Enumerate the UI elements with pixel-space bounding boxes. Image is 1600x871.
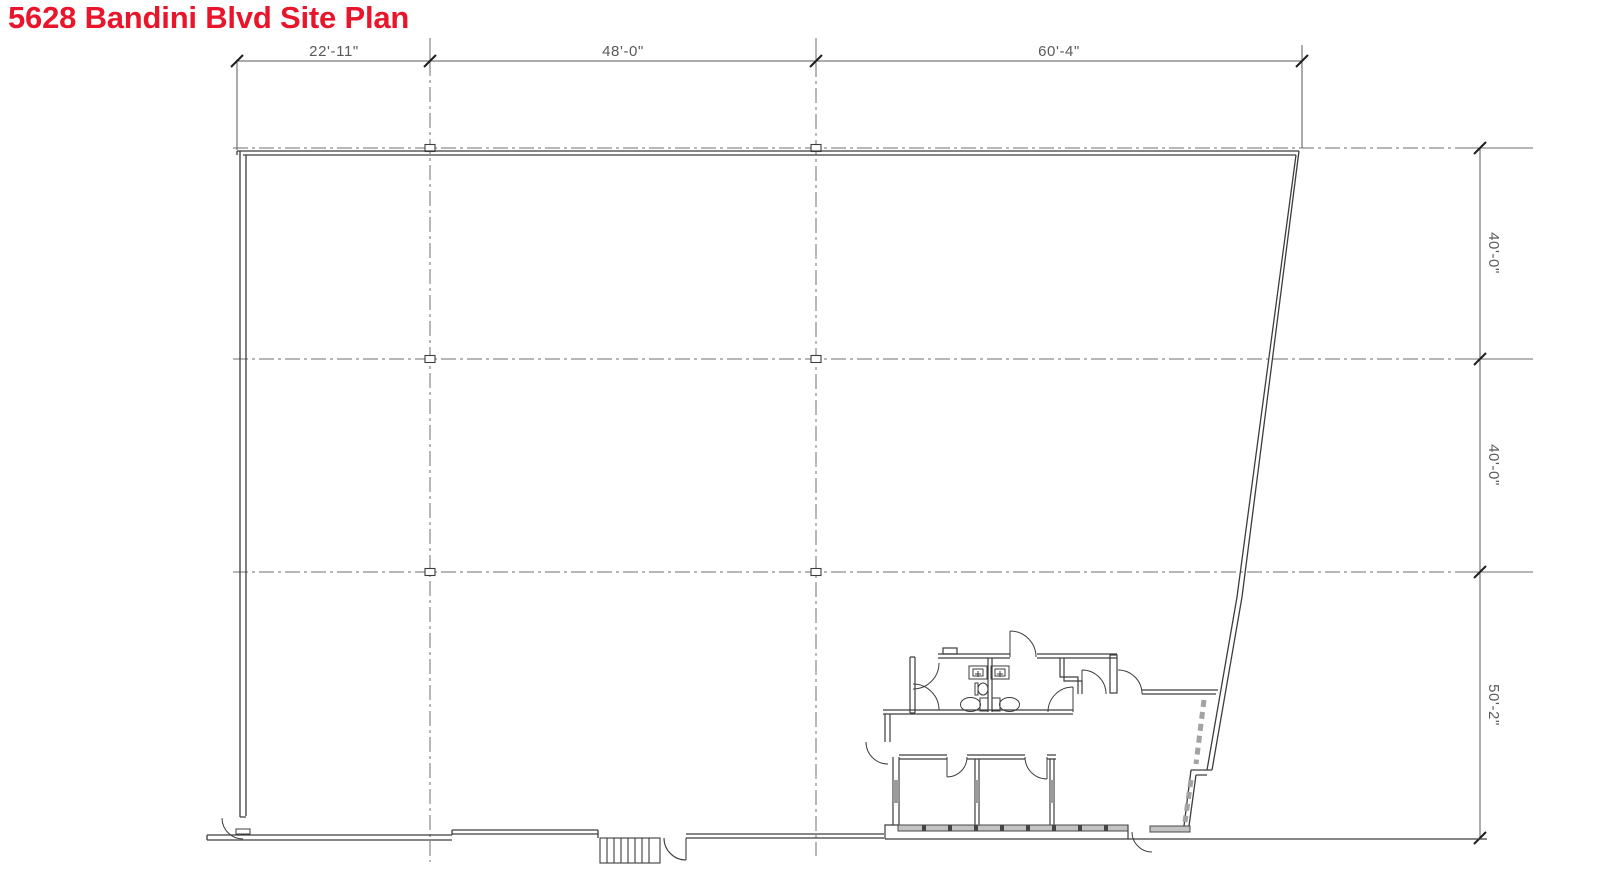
south-wall-b xyxy=(452,830,598,835)
dimension-string-top: 22'-11" 48'-0" 60'-4" xyxy=(231,43,1308,150)
grid-extension-lines xyxy=(430,38,1533,572)
dimension-label-right-2: 40'-0" xyxy=(1485,444,1502,486)
vestibule-door-arc-upper xyxy=(913,663,939,689)
restroom-south-wall xyxy=(883,710,1073,714)
stair-enclosure xyxy=(600,838,660,863)
office-west-wall-infill xyxy=(893,780,899,803)
north-wall xyxy=(237,151,1299,155)
vestibule-door-arc-lower xyxy=(913,684,939,710)
building-outline xyxy=(207,151,1487,840)
site-plan-drawing: 22'-11" 48'-0" 60'-4" 40'-0" 40'-0" 50'-… xyxy=(0,0,1600,871)
restroom-west-wall xyxy=(910,657,915,713)
room-door-2 xyxy=(1025,757,1047,779)
sink-left xyxy=(969,666,987,679)
office-door-arc-2 xyxy=(1118,670,1142,694)
room-door-1 xyxy=(947,757,967,777)
restroom-north-door xyxy=(1010,631,1036,657)
restroom-south-door xyxy=(1048,687,1073,712)
bathroom-fixtures xyxy=(961,666,1020,712)
restroom-shelf xyxy=(943,648,957,654)
sink-right xyxy=(991,666,1009,679)
slant-window-hatch-1 xyxy=(1196,700,1204,764)
office-corridor-wall xyxy=(1142,690,1218,694)
stair-treads xyxy=(607,838,649,863)
dimension-string-right: 40'-0" 40'-0" 50'-2" xyxy=(1474,142,1502,844)
column-markers xyxy=(425,145,821,576)
office-west-stub xyxy=(885,714,890,742)
dimension-label-top-2: 48'-0" xyxy=(602,43,644,60)
office-entry-door-arc xyxy=(866,742,888,764)
office-area xyxy=(866,631,1218,852)
office-sw-corner-jog xyxy=(885,825,898,839)
east-slanted-wall xyxy=(1207,151,1299,770)
west-wall xyxy=(240,151,246,817)
west-entry-threshold xyxy=(236,829,250,834)
stair-door-arc xyxy=(664,838,686,860)
storefront-glazing-band-2 xyxy=(1150,826,1190,832)
urinal xyxy=(975,683,988,695)
south-wall-a xyxy=(207,835,452,840)
room-partition-1-infill xyxy=(975,780,979,803)
storefront-glazing-band xyxy=(898,825,1128,831)
office-se-door-arc xyxy=(1132,832,1152,852)
office-door-arc-1 xyxy=(1082,670,1106,694)
site-plan-page: 5628 Bandini Blvd Site Plan xyxy=(0,0,1600,871)
dimension-label-top-1: 22'-11" xyxy=(309,43,359,60)
dimension-label-right-1: 40'-0" xyxy=(1485,232,1502,274)
dimension-label-right-3: 50'-2" xyxy=(1485,684,1502,726)
grid-lines xyxy=(233,38,1533,862)
room-partition-2-infill xyxy=(1050,780,1054,803)
office-wall-pier xyxy=(1110,655,1117,693)
stairs xyxy=(600,838,686,863)
south-wall-c xyxy=(686,834,884,838)
restroom-north-wall xyxy=(938,654,1117,658)
dimension-label-top-3: 60'-4" xyxy=(1038,43,1080,60)
office-interior-wall xyxy=(899,755,1056,759)
